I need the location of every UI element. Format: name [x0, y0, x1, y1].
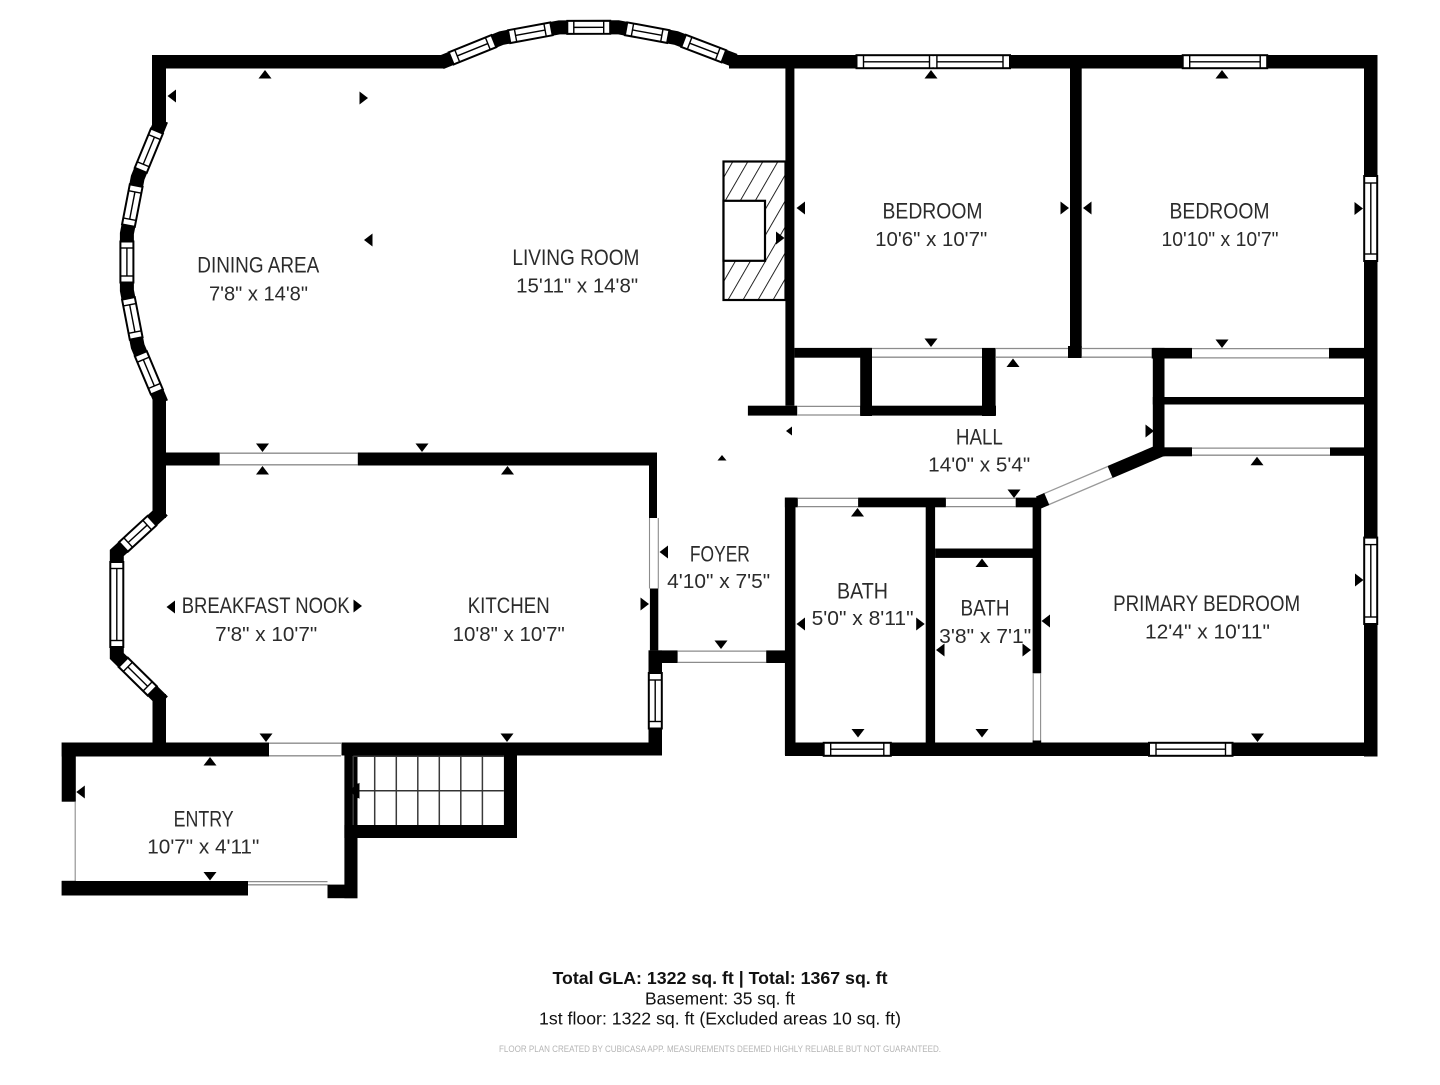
svg-text:5'0" x 8'11": 5'0" x 8'11": [812, 608, 914, 630]
svg-text:7'8" x 14'8": 7'8" x 14'8": [209, 283, 308, 305]
svg-text:Total GLA: 1322 sq. ft | Total: Total GLA: 1322 sq. ft | Total: 1367 sq.…: [553, 968, 888, 988]
svg-text:KITCHEN: KITCHEN: [468, 593, 550, 618]
svg-text:BREAKFAST NOOK: BREAKFAST NOOK: [182, 593, 350, 618]
svg-text:4'10" x 7'5": 4'10" x 7'5": [667, 571, 770, 593]
svg-text:14'0" x 5'4": 14'0" x 5'4": [928, 455, 1030, 477]
svg-text:BEDROOM: BEDROOM: [883, 199, 983, 224]
svg-text:10'10" x 10'7": 10'10" x 10'7": [1162, 229, 1279, 251]
svg-text:ENTRY: ENTRY: [174, 807, 234, 832]
svg-text:BATH: BATH: [837, 579, 888, 604]
svg-text:FOYER: FOYER: [690, 542, 750, 567]
svg-text:10'6" x 10'7": 10'6" x 10'7": [875, 229, 987, 251]
svg-text:10'8" x 10'7": 10'8" x 10'7": [453, 624, 565, 646]
svg-text:BATH: BATH: [961, 596, 1010, 621]
svg-text:BEDROOM: BEDROOM: [1170, 199, 1270, 224]
svg-text:FLOOR PLAN CREATED BY CUBICASA: FLOOR PLAN CREATED BY CUBICASA APP. MEAS…: [499, 1044, 941, 1055]
svg-text:LIVING ROOM: LIVING ROOM: [512, 245, 639, 270]
svg-text:Basement: 35 sq. ft: Basement: 35 sq. ft: [645, 989, 795, 1009]
svg-text:3'8" x 7'1": 3'8" x 7'1": [939, 626, 1031, 648]
svg-text:HALL: HALL: [956, 425, 1003, 450]
svg-text:1st floor: 1322 sq. ft (Exclud: 1st floor: 1322 sq. ft (Excluded areas 1…: [539, 1009, 901, 1029]
svg-text:10'7" x 4'11": 10'7" x 4'11": [147, 837, 259, 859]
svg-text:7'8" x 10'7": 7'8" x 10'7": [215, 624, 317, 646]
svg-text:15'11" x 14'8": 15'11" x 14'8": [516, 276, 638, 298]
svg-text:PRIMARY BEDROOM: PRIMARY BEDROOM: [1113, 591, 1300, 616]
svg-text:12'4" x 10'11": 12'4" x 10'11": [1145, 622, 1270, 644]
svg-text:DINING AREA: DINING AREA: [197, 253, 319, 278]
